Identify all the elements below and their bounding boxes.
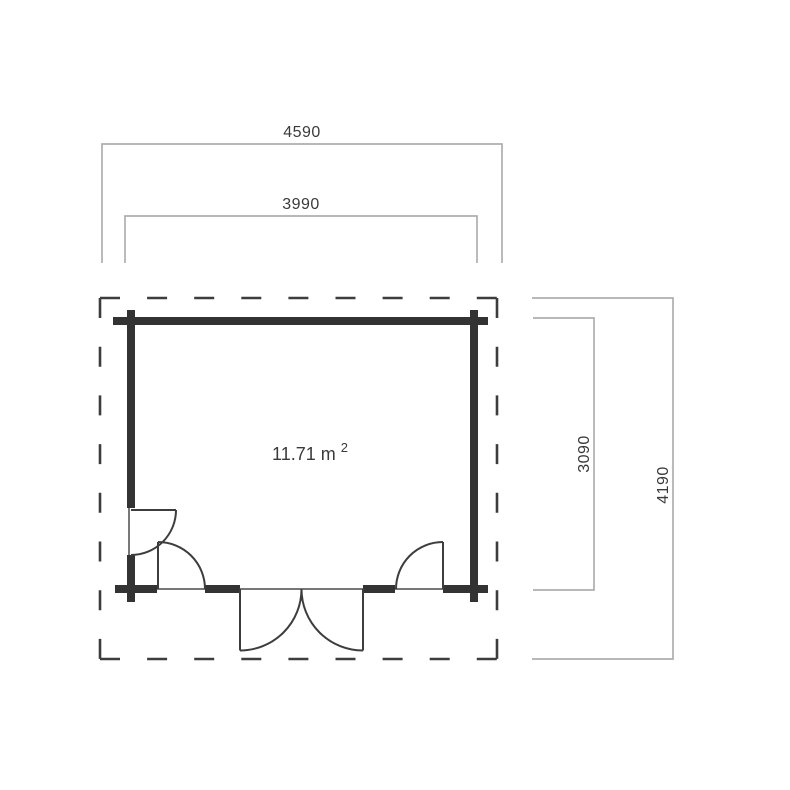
roof-width-dimension-label: 4590	[283, 124, 321, 141]
double-door-left-swing-arc	[240, 589, 302, 651]
floor-area-label: 11.71 m 2	[272, 440, 348, 464]
doors-group	[131, 510, 443, 651]
left-wall-door-swing-arc	[131, 510, 176, 555]
wall-depth-dimension-label: 3090	[576, 435, 593, 473]
floorplan-canvas: 4590 3990 3090 4190	[0, 0, 790, 790]
bottom-right-door-swing-arc	[396, 542, 443, 589]
wall-width-dimension-bracket	[125, 216, 477, 263]
double-door-right-swing-arc	[301, 589, 363, 651]
floorplan-drawing: 4590 3990 3090 4190	[0, 0, 790, 790]
wall-width-dimension-label: 3990	[282, 196, 320, 213]
bottom-left-door-swing-arc	[158, 542, 205, 589]
floor-area-superscript: 2	[341, 440, 348, 455]
roof-outline-group	[100, 298, 497, 659]
thresholds-group	[129, 508, 443, 589]
roof-depth-dimension-bracket	[532, 298, 673, 659]
dimension-lines-group	[102, 144, 673, 659]
floor-area-value: 11.71 m	[272, 444, 336, 464]
roof-depth-dimension-label: 4190	[655, 466, 672, 504]
